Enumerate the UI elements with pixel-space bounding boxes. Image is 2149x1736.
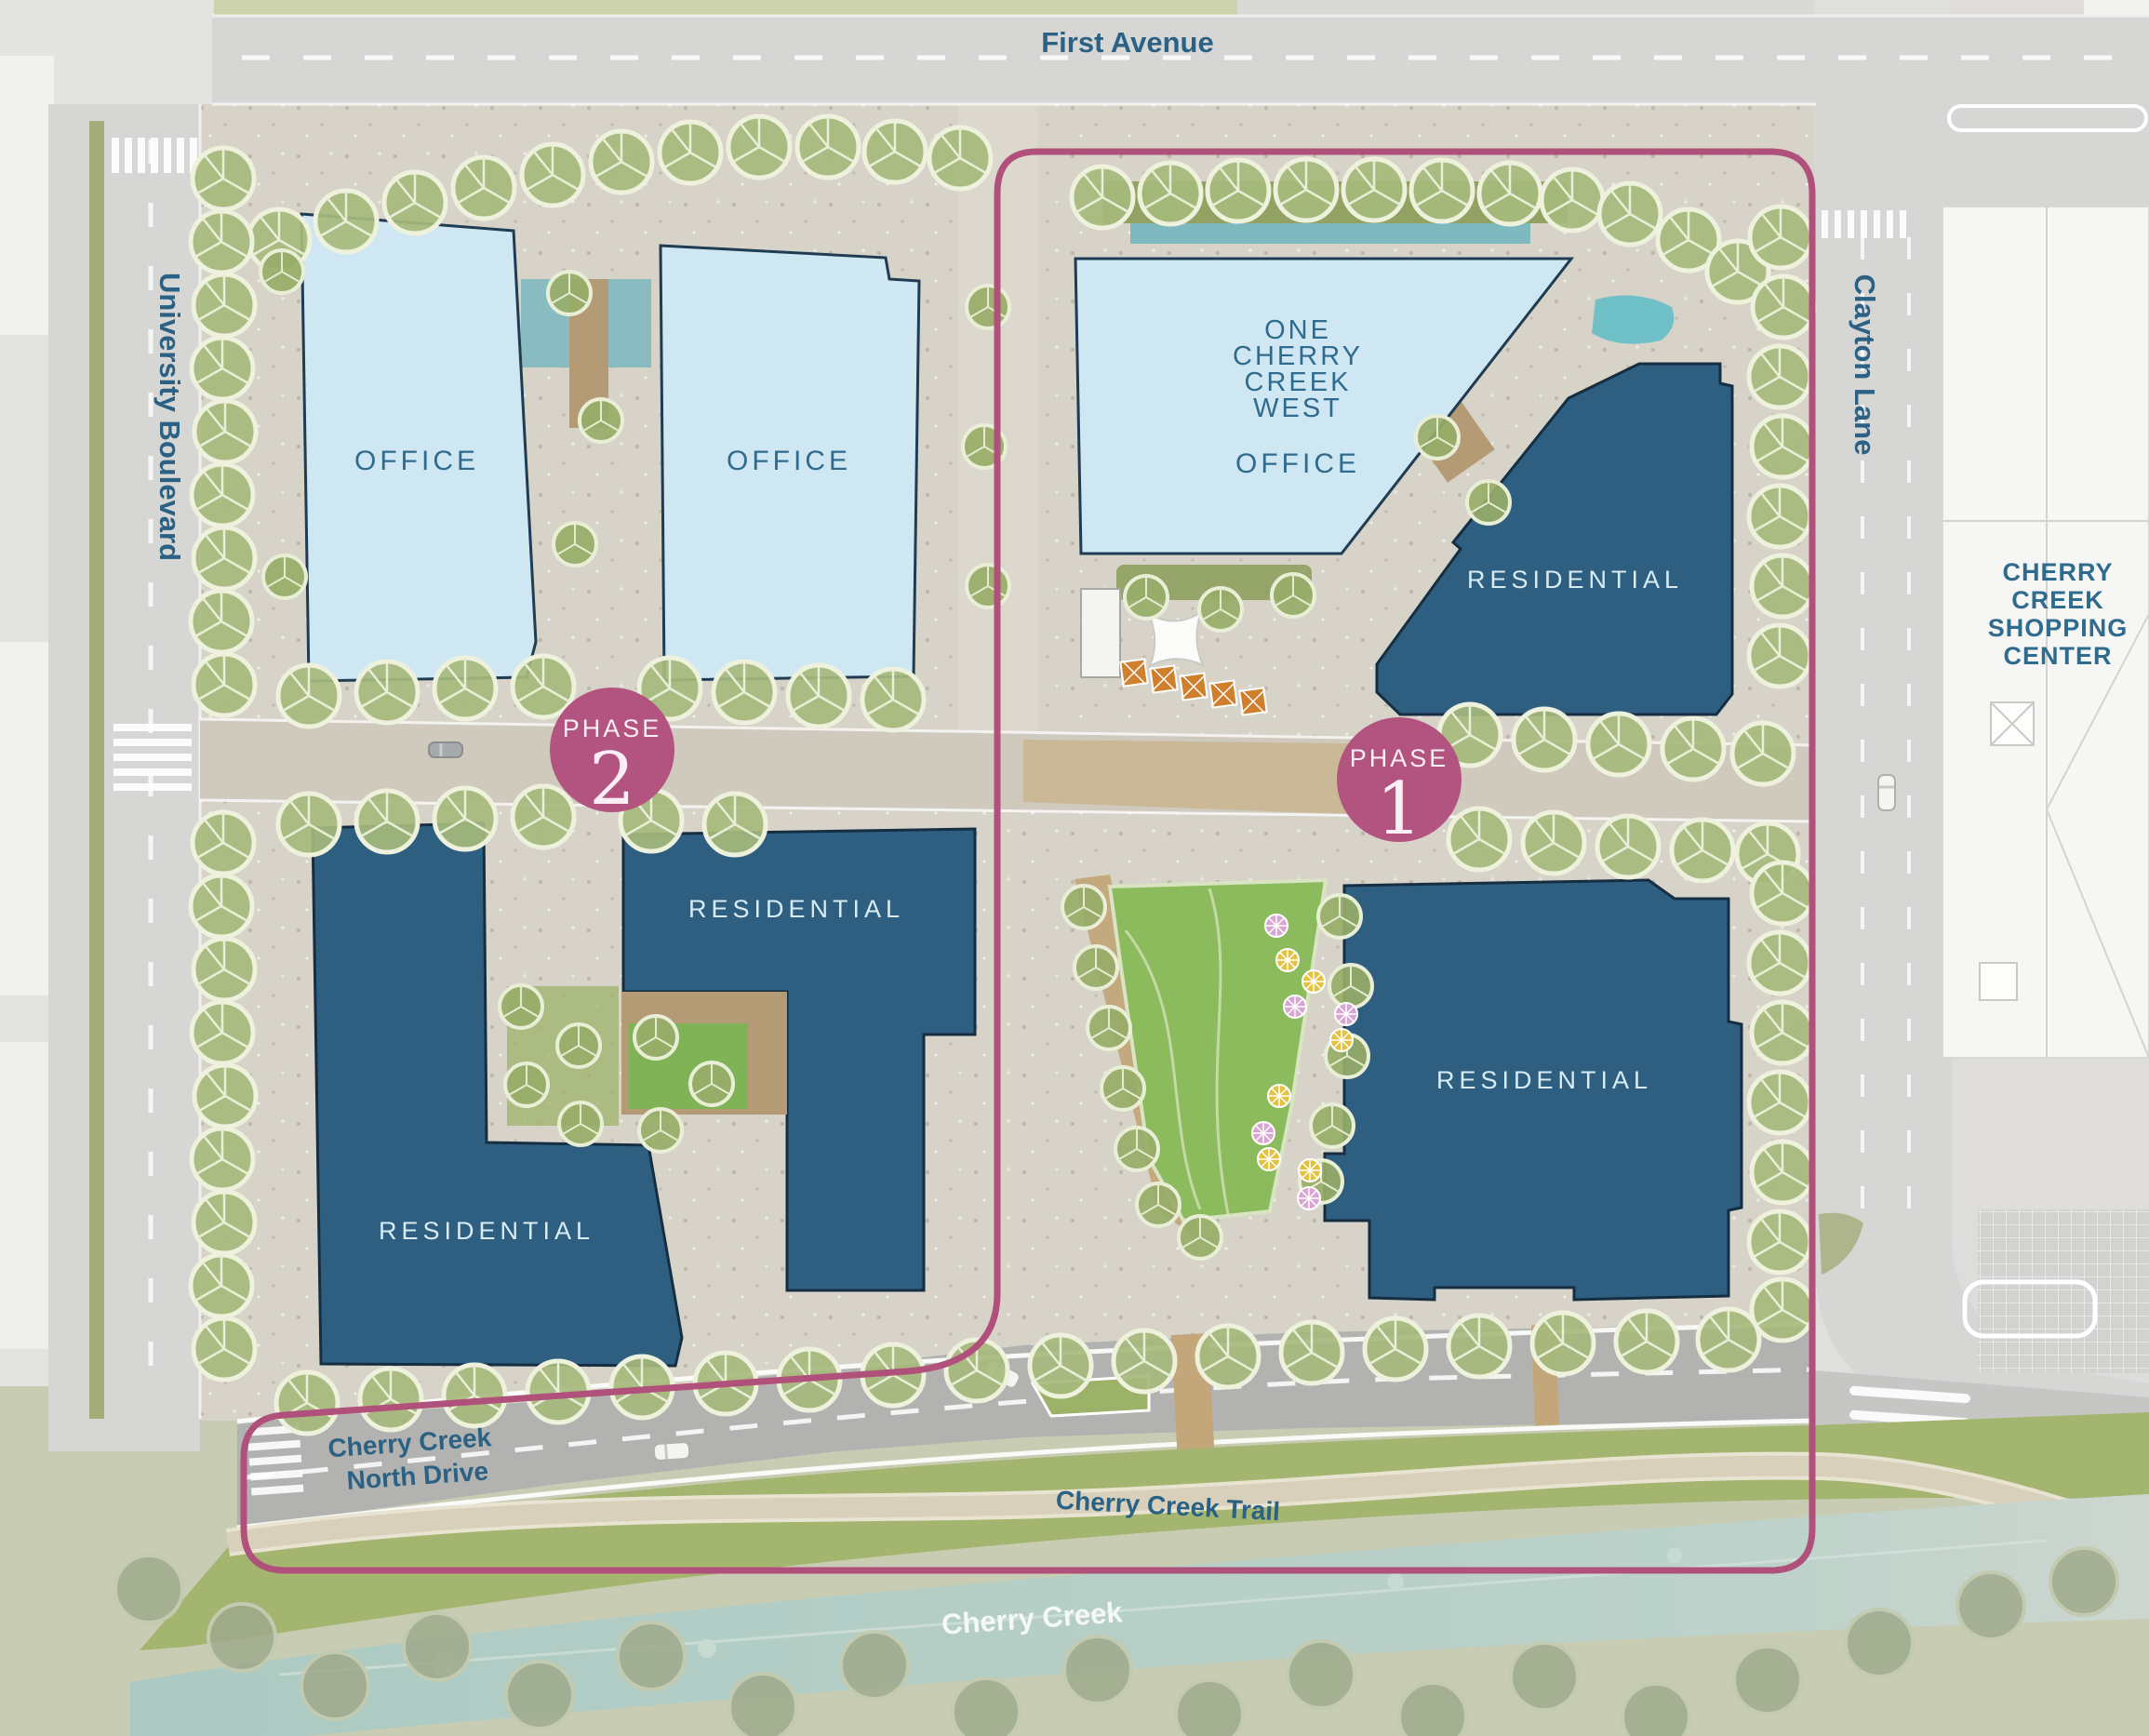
shopping-center-label-line-2: CREEK xyxy=(2011,586,2104,614)
residential-sw-label: RESIDENTIAL xyxy=(379,1217,594,1245)
site-plan-canvas: PHASE 2 PHASE 1 First Avenue University … xyxy=(0,0,2149,1736)
car xyxy=(653,1442,689,1462)
office-nw-label: OFFICE xyxy=(354,446,479,476)
occw-name-line-4: WEST xyxy=(1253,394,1342,423)
shopping-center-label-line-3: SHOPPING xyxy=(1988,614,2129,642)
first-avenue-label: First Avenue xyxy=(1041,26,1213,59)
occw-office-label: OFFICE xyxy=(1235,448,1360,479)
clayton-lane-road xyxy=(1816,214,1952,1284)
car xyxy=(1878,775,1895,810)
phase-1-number: 1 xyxy=(1376,768,1422,851)
university-boulevard-label: University Boulevard xyxy=(153,273,186,561)
car xyxy=(429,742,462,757)
playground-splash xyxy=(1592,296,1674,344)
residential-center-label: RESIDENTIAL xyxy=(688,895,904,923)
clayton-lane-label: Clayton Lane xyxy=(1849,274,1881,456)
site-plan: PHASE 2 PHASE 1 First Avenue University … xyxy=(0,0,2149,1736)
shopping-center-label-line-4: CENTER xyxy=(2003,642,2112,670)
shopping-center-label-line-1: CHERRY xyxy=(2002,558,2113,586)
residential-ne-label: RESIDENTIAL xyxy=(1467,566,1683,594)
phase-2-number: 2 xyxy=(589,738,635,821)
residential-se-label: RESIDENTIAL xyxy=(1436,1066,1652,1094)
office-n-label: OFFICE xyxy=(727,446,851,476)
shade-sail xyxy=(1149,612,1203,666)
pavilion xyxy=(1081,589,1120,677)
